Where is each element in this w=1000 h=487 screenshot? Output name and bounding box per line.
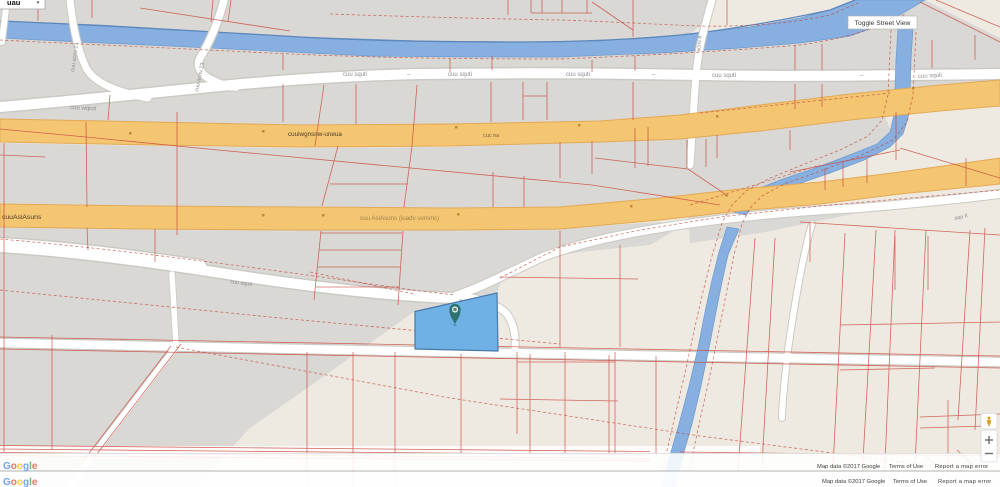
svg-text:Terms of Use: Terms of Use <box>889 464 923 470</box>
svg-text:Report a map error: Report a map error <box>938 479 991 485</box>
svg-text:cuu squti: cuu squti <box>566 72 590 78</box>
svg-text:Terms of Use: Terms of Use <box>893 479 927 485</box>
svg-text:cuuiwgnsnw-uneua: cuuiwgnsnw-uneua <box>288 131 342 138</box>
svg-text:cuu squti: cuu squti <box>918 73 942 80</box>
svg-text:Map data ©2017 Google: Map data ©2017 Google <box>817 463 880 470</box>
svg-text:Google: Google <box>3 477 38 487</box>
svg-text:cuu squti: cuu squti <box>712 73 736 79</box>
svg-text:Map data ©2017 Google: Map data ©2017 Google <box>822 478 885 485</box>
svg-text:uau: uau <box>7 0 21 7</box>
svg-text:cuu squti: cuu squti <box>448 72 472 78</box>
svg-text:cuuAsiAsuns: cuuAsiAsuns <box>2 214 42 221</box>
svg-text:Toggle Street View: Toggle Street View <box>855 20 911 27</box>
svg-text:cuc na: cuc na <box>483 133 500 139</box>
svg-text:Report a map error: Report a map error <box>935 464 988 470</box>
svg-text:cuu AsiAsuns (iuadv uvnvnc): cuu AsiAsuns (iuadv uvnvnc) <box>360 215 439 222</box>
svg-text:Google: Google <box>3 461 38 472</box>
svg-text:cuu squti: cuu squti <box>343 72 367 78</box>
